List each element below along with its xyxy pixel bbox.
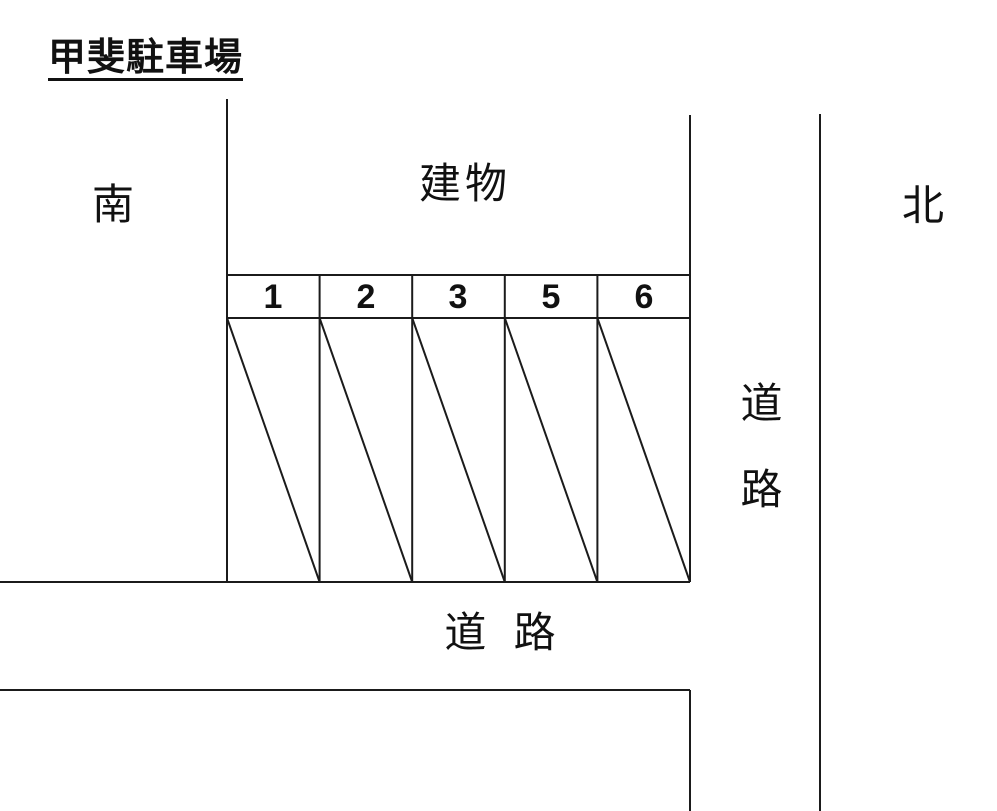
stall-diagonal-1 bbox=[227, 318, 320, 582]
south-label: 南 bbox=[70, 184, 156, 226]
stall-diagonal-4 bbox=[505, 318, 598, 582]
stall-number-3: 3 bbox=[436, 277, 480, 317]
stall-number-5: 5 bbox=[529, 277, 573, 317]
building-label: 建物 bbox=[385, 163, 545, 205]
stall-number-6: 6 bbox=[622, 277, 666, 317]
diagram-lines bbox=[0, 0, 997, 811]
stall-diagonal-3 bbox=[412, 318, 505, 582]
road-right-label: 道路 bbox=[733, 381, 779, 553]
road-bottom-label: 道 路 bbox=[400, 612, 600, 654]
parking-lot-diagram: 甲斐駐車場 南 建物 北 道路 道 路 1 2 3 5 6 bbox=[0, 0, 997, 811]
diagram-title: 甲斐駐車場 bbox=[48, 38, 243, 81]
stall-number-2: 2 bbox=[344, 277, 388, 317]
stall-number-1: 1 bbox=[251, 277, 295, 317]
stall-diagonal-5 bbox=[597, 318, 690, 582]
north-label: 北 bbox=[880, 185, 966, 227]
stall-diagonal-2 bbox=[320, 318, 413, 582]
